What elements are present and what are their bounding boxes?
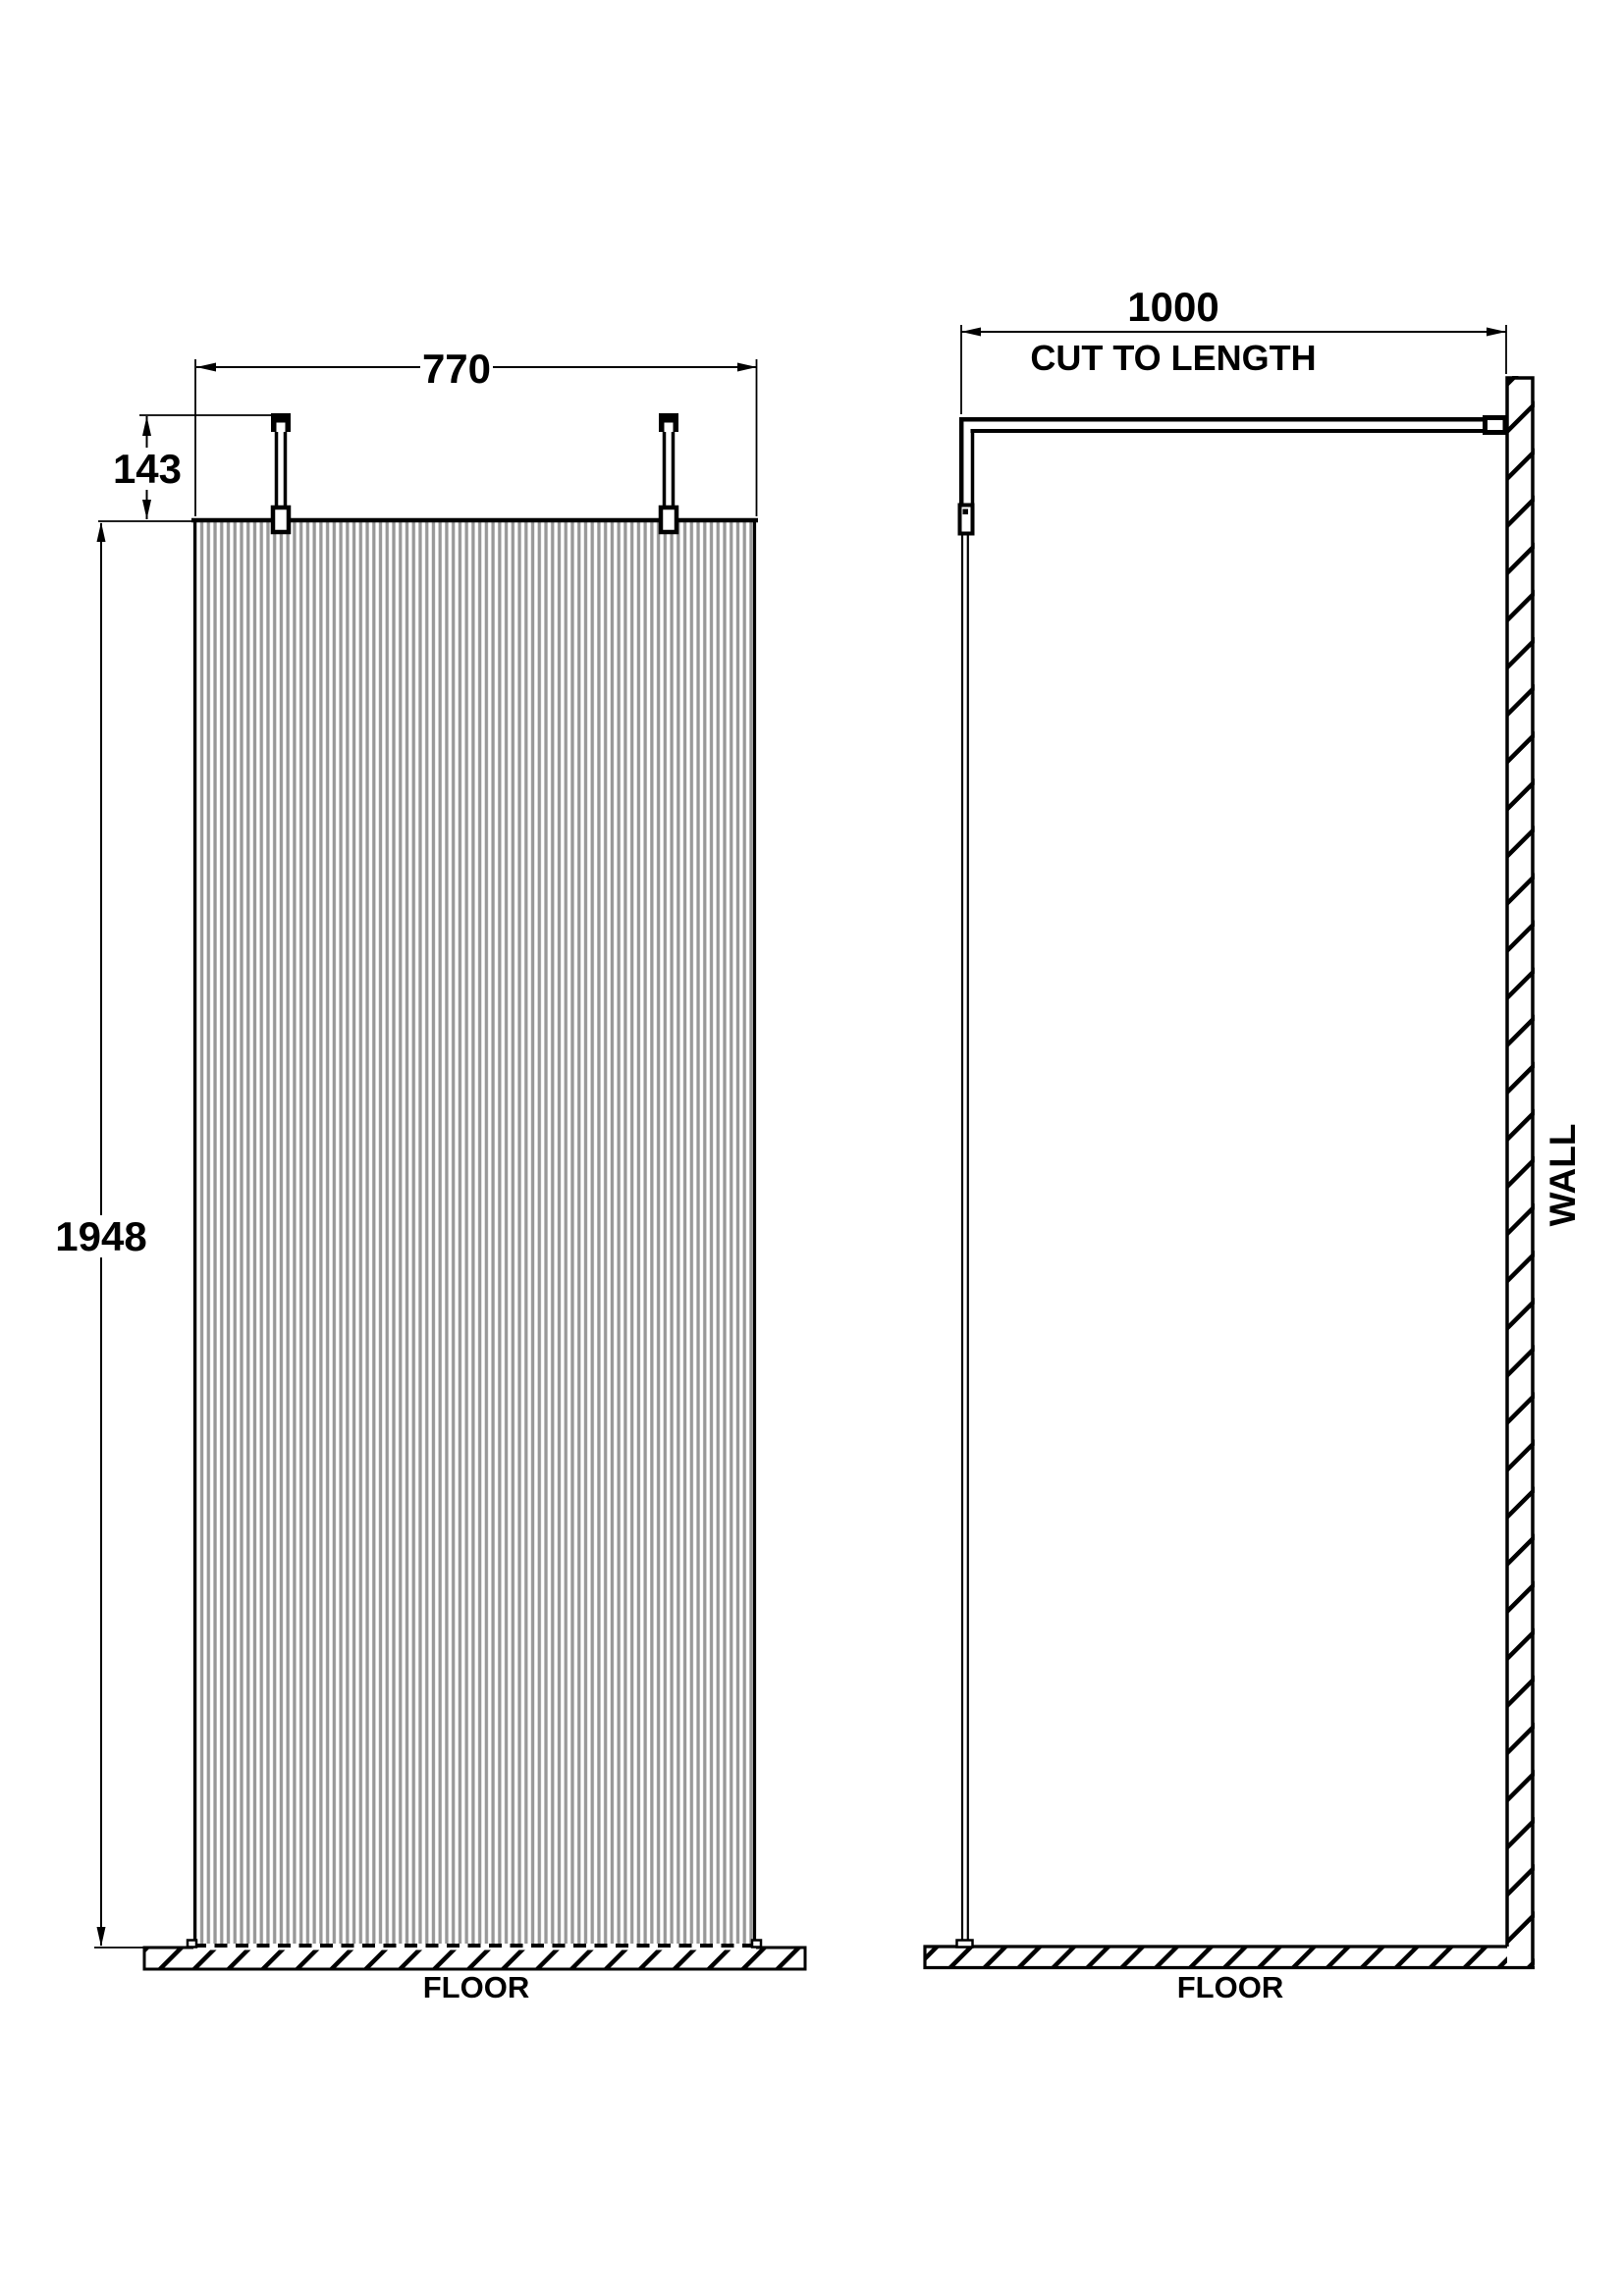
support-rod-left <box>271 413 291 532</box>
dim-arrow-right <box>737 363 757 372</box>
wall-section <box>1507 376 1535 1969</box>
panel-foot-right <box>752 1941 761 1948</box>
dim-arm-drop-value: 143 <box>113 446 182 492</box>
support-arm <box>959 417 1505 505</box>
support-rod-right <box>659 413 678 532</box>
clamp-screw <box>963 509 969 515</box>
dim-width-value: 770 <box>422 346 491 392</box>
glass-clamp-left <box>273 507 289 532</box>
front-view: 770 143 1948 FLOOR <box>54 346 805 2004</box>
panel-foot-left <box>188 1941 196 1948</box>
dim-arrow-right <box>1487 328 1506 337</box>
wall-bracket <box>1486 418 1506 433</box>
glass-clamp-right <box>661 507 676 532</box>
side-floor-label: FLOOR <box>1177 1970 1284 2004</box>
front-floor-section <box>144 1948 805 1969</box>
dim-arm-length-note: CUT TO LENGTH <box>1030 338 1316 378</box>
dim-arrow-up <box>97 522 106 542</box>
fluted-glass-panel <box>193 520 756 1944</box>
dim-arm-length-1000: 1000 CUT TO LENGTH <box>961 284 1506 414</box>
dim-arrow-left <box>961 328 981 337</box>
dim-arrow-left <box>196 363 216 372</box>
wall-label: WALL <box>1542 1124 1583 1227</box>
side-view: 1000 CUT TO LENGTH WALL FLOOR <box>925 284 1583 2004</box>
technical-drawing-page: 770 143 1948 FLOOR <box>0 0 1623 2296</box>
dim-height-1948: 1948 <box>54 522 148 1948</box>
dim-arrow-down <box>142 500 151 519</box>
front-floor-label: FLOOR <box>423 1970 530 2004</box>
panel-foot-side <box>957 1941 973 1948</box>
side-floor-section <box>925 1947 1507 1969</box>
shower-screen-drawing: 770 143 1948 FLOOR <box>0 0 1623 2296</box>
dim-arm-drop-143: 143 <box>98 415 271 521</box>
dim-height-value: 1948 <box>55 1213 146 1259</box>
dim-arrow-up <box>142 416 151 436</box>
arm-end-cap-slot-left <box>277 423 286 433</box>
arm-end-cap-slot-right <box>665 423 674 433</box>
dim-arrow-down <box>97 1927 106 1947</box>
dim-arm-length-value: 1000 <box>1127 284 1218 330</box>
